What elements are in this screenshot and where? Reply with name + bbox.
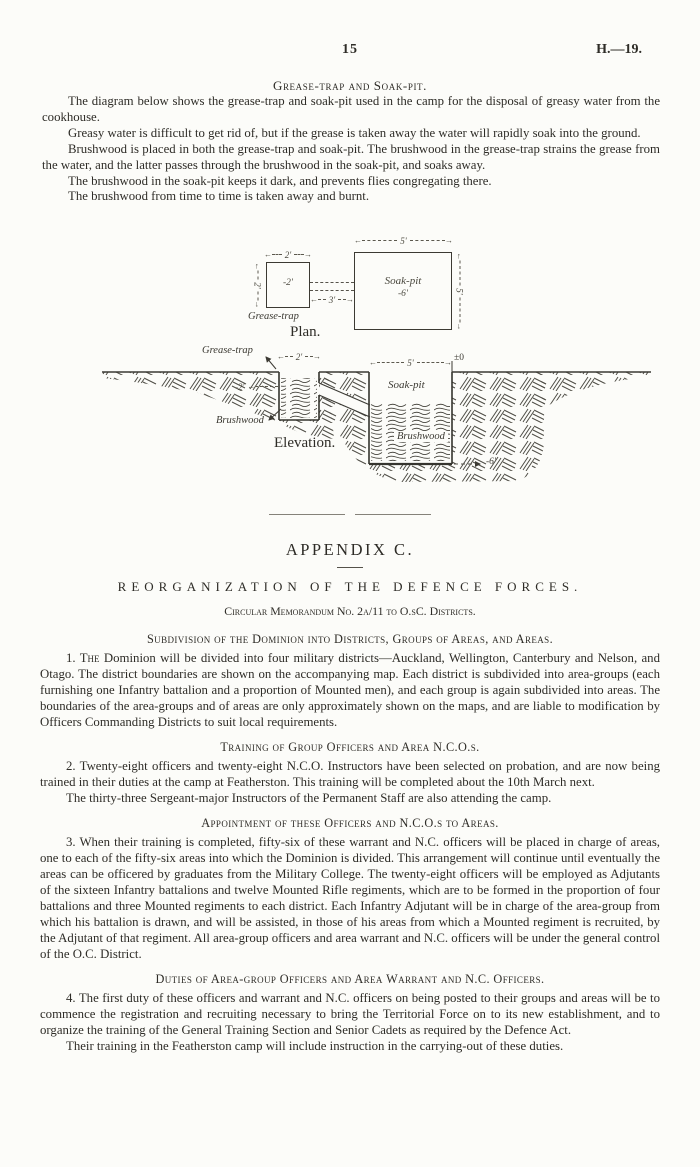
- paragraph: Their training in the Featherston camp w…: [40, 1038, 660, 1054]
- arrow-right-icon: →: [444, 359, 452, 367]
- paragraph: 3. When their training is completed, fif…: [40, 834, 660, 962]
- elevation-soak-pit-depth: -6': [486, 457, 496, 467]
- paragraph-text: Dominion will be divided into four milit…: [40, 651, 660, 729]
- arrow-left-icon: ←: [354, 237, 362, 245]
- arrow-right-icon: →: [445, 237, 453, 245]
- section-divider: [0, 514, 700, 515]
- divider-segment: [355, 514, 431, 515]
- arrow-left-icon: ←: [456, 253, 464, 261]
- dimension-label: 2': [293, 352, 305, 362]
- paragraph: 1. The Dominion will be divided into fou…: [40, 650, 660, 730]
- paragraph: The brushwood in the soak-pit keeps it d…: [42, 174, 660, 190]
- plan-channel-line: [310, 290, 354, 291]
- arrow-left-icon: ←: [277, 353, 285, 361]
- page-number: 15: [0, 42, 700, 58]
- section-heading-duties: Duties of Area-group Officers and Area W…: [40, 972, 660, 987]
- paragraph: The brushwood from time to time is taken…: [42, 189, 660, 205]
- arrow-right-icon: →: [254, 301, 262, 309]
- paper-reference: H.—19.: [596, 42, 642, 58]
- section-heading-subdivision: Subdivision of the Dominion into Distric…: [40, 632, 660, 647]
- elevation-grease-trap-depth-dimension: -2' ←: [232, 381, 278, 392]
- plan-grease-trap-depth: -2': [267, 278, 309, 288]
- dimension-label: 2': [253, 279, 263, 291]
- document-page: { "page": { "number": "15", "reference":…: [0, 0, 700, 1167]
- short-rule: [337, 567, 363, 568]
- plan-channel-line: [310, 282, 354, 283]
- plan-channel-length-dimension: ← 3' →: [310, 294, 354, 305]
- plan-soak-pit-side-dimension: ← 5' →: [455, 253, 466, 331]
- dimension-label: 5': [397, 236, 409, 246]
- arrow-left-icon: ←: [264, 251, 272, 259]
- paragraph: Brushwood is placed in both the grease-t…: [42, 142, 660, 174]
- plan-grease-trap-side-dimension: ← 2' →: [253, 263, 264, 309]
- arrow-left-icon: ←: [254, 263, 262, 271]
- dimension-label: 5': [404, 358, 416, 368]
- section-heading-training: Training of Group Officers and Area N.C.…: [40, 740, 660, 755]
- plan-grease-trap-outline: -2': [266, 262, 310, 308]
- arrow-right-icon: →: [346, 296, 354, 304]
- arrow-right-icon: →: [304, 251, 312, 259]
- arrow-left-icon: ←: [369, 359, 377, 367]
- section-heading-appointment: Appointment of these Officers and N.C.O.…: [40, 816, 660, 831]
- divider-segment: [269, 514, 345, 515]
- elevation-ground-datum: ±0: [454, 353, 464, 363]
- paragraph: The diagram below shows the grease-trap …: [42, 94, 660, 126]
- arrow-right-icon: →: [456, 323, 464, 331]
- elevation-soak-pit-label: Soak-pit: [388, 379, 425, 391]
- plan-diagram: ← 2' → ← 2' → -2' Grease-trap ← 3' → ← 5…: [228, 226, 480, 350]
- paragraph-lead: 1. The: [66, 651, 100, 665]
- dimension-label: -2': [232, 382, 247, 392]
- plan-caption: Plan.: [290, 324, 320, 341]
- paragraph: 2. Twenty-eight officers and twenty-eigh…: [40, 758, 660, 790]
- paragraph: The thirty-three Sergeant-major Instruct…: [40, 790, 660, 806]
- appendix-heading: REORGANIZATION OF THE DEFENCE FORCES.: [40, 579, 660, 595]
- paragraph: 4. The first duty of these officers and …: [40, 990, 660, 1038]
- arrow-left-icon: ←: [310, 296, 318, 304]
- elevation-grease-trap-width-dimension: ← 2' →: [277, 351, 321, 362]
- elevation-brushwood-label: Brushwood: [216, 415, 264, 426]
- dimension-label: 2': [282, 250, 294, 260]
- plan-soak-pit-label: Soak-pit: [355, 275, 451, 287]
- appendix-title: APPENDIX C.: [40, 540, 660, 560]
- paragraph: Greasy water is difficult to get rid of,…: [42, 126, 660, 142]
- plan-soak-pit-outline: Soak-pit -6': [354, 252, 452, 330]
- grease-section-text: The diagram below shows the grease-trap …: [42, 94, 660, 205]
- dimension-label: 3': [326, 295, 338, 305]
- appendix-c: APPENDIX C. REORGANIZATION OF THE DEFENC…: [40, 534, 660, 1054]
- elevation-grease-trap-label: Grease-trap: [202, 345, 253, 356]
- circular-memorandum-line: Circular Memorandum No. 2a/11 to O.sC. D…: [40, 604, 660, 619]
- section-heading-grease-trap: Grease-trap and Soak-pit.: [0, 78, 700, 94]
- elevation-caption: Elevation.: [274, 435, 335, 452]
- dimension-label: 5': [455, 285, 465, 297]
- elevation-pit-brushwood-label: Brushwood: [394, 431, 448, 442]
- plan-soak-pit-width-dimension: ← 5' →: [354, 235, 453, 246]
- elevation-diagram: Grease-trap ← 2' → -2' ← Brushwood ← 5' …: [98, 343, 660, 493]
- plan-grease-trap-label: Grease-trap: [248, 311, 299, 322]
- arrow-left-icon: ←: [247, 383, 255, 391]
- elevation-soak-pit-width-dimension: ← 5' →: [369, 357, 452, 368]
- plan-grease-trap-width-dimension: ← 2' →: [264, 249, 312, 260]
- plan-soak-pit-depth: -6': [355, 289, 451, 299]
- arrow-right-icon: →: [313, 353, 321, 361]
